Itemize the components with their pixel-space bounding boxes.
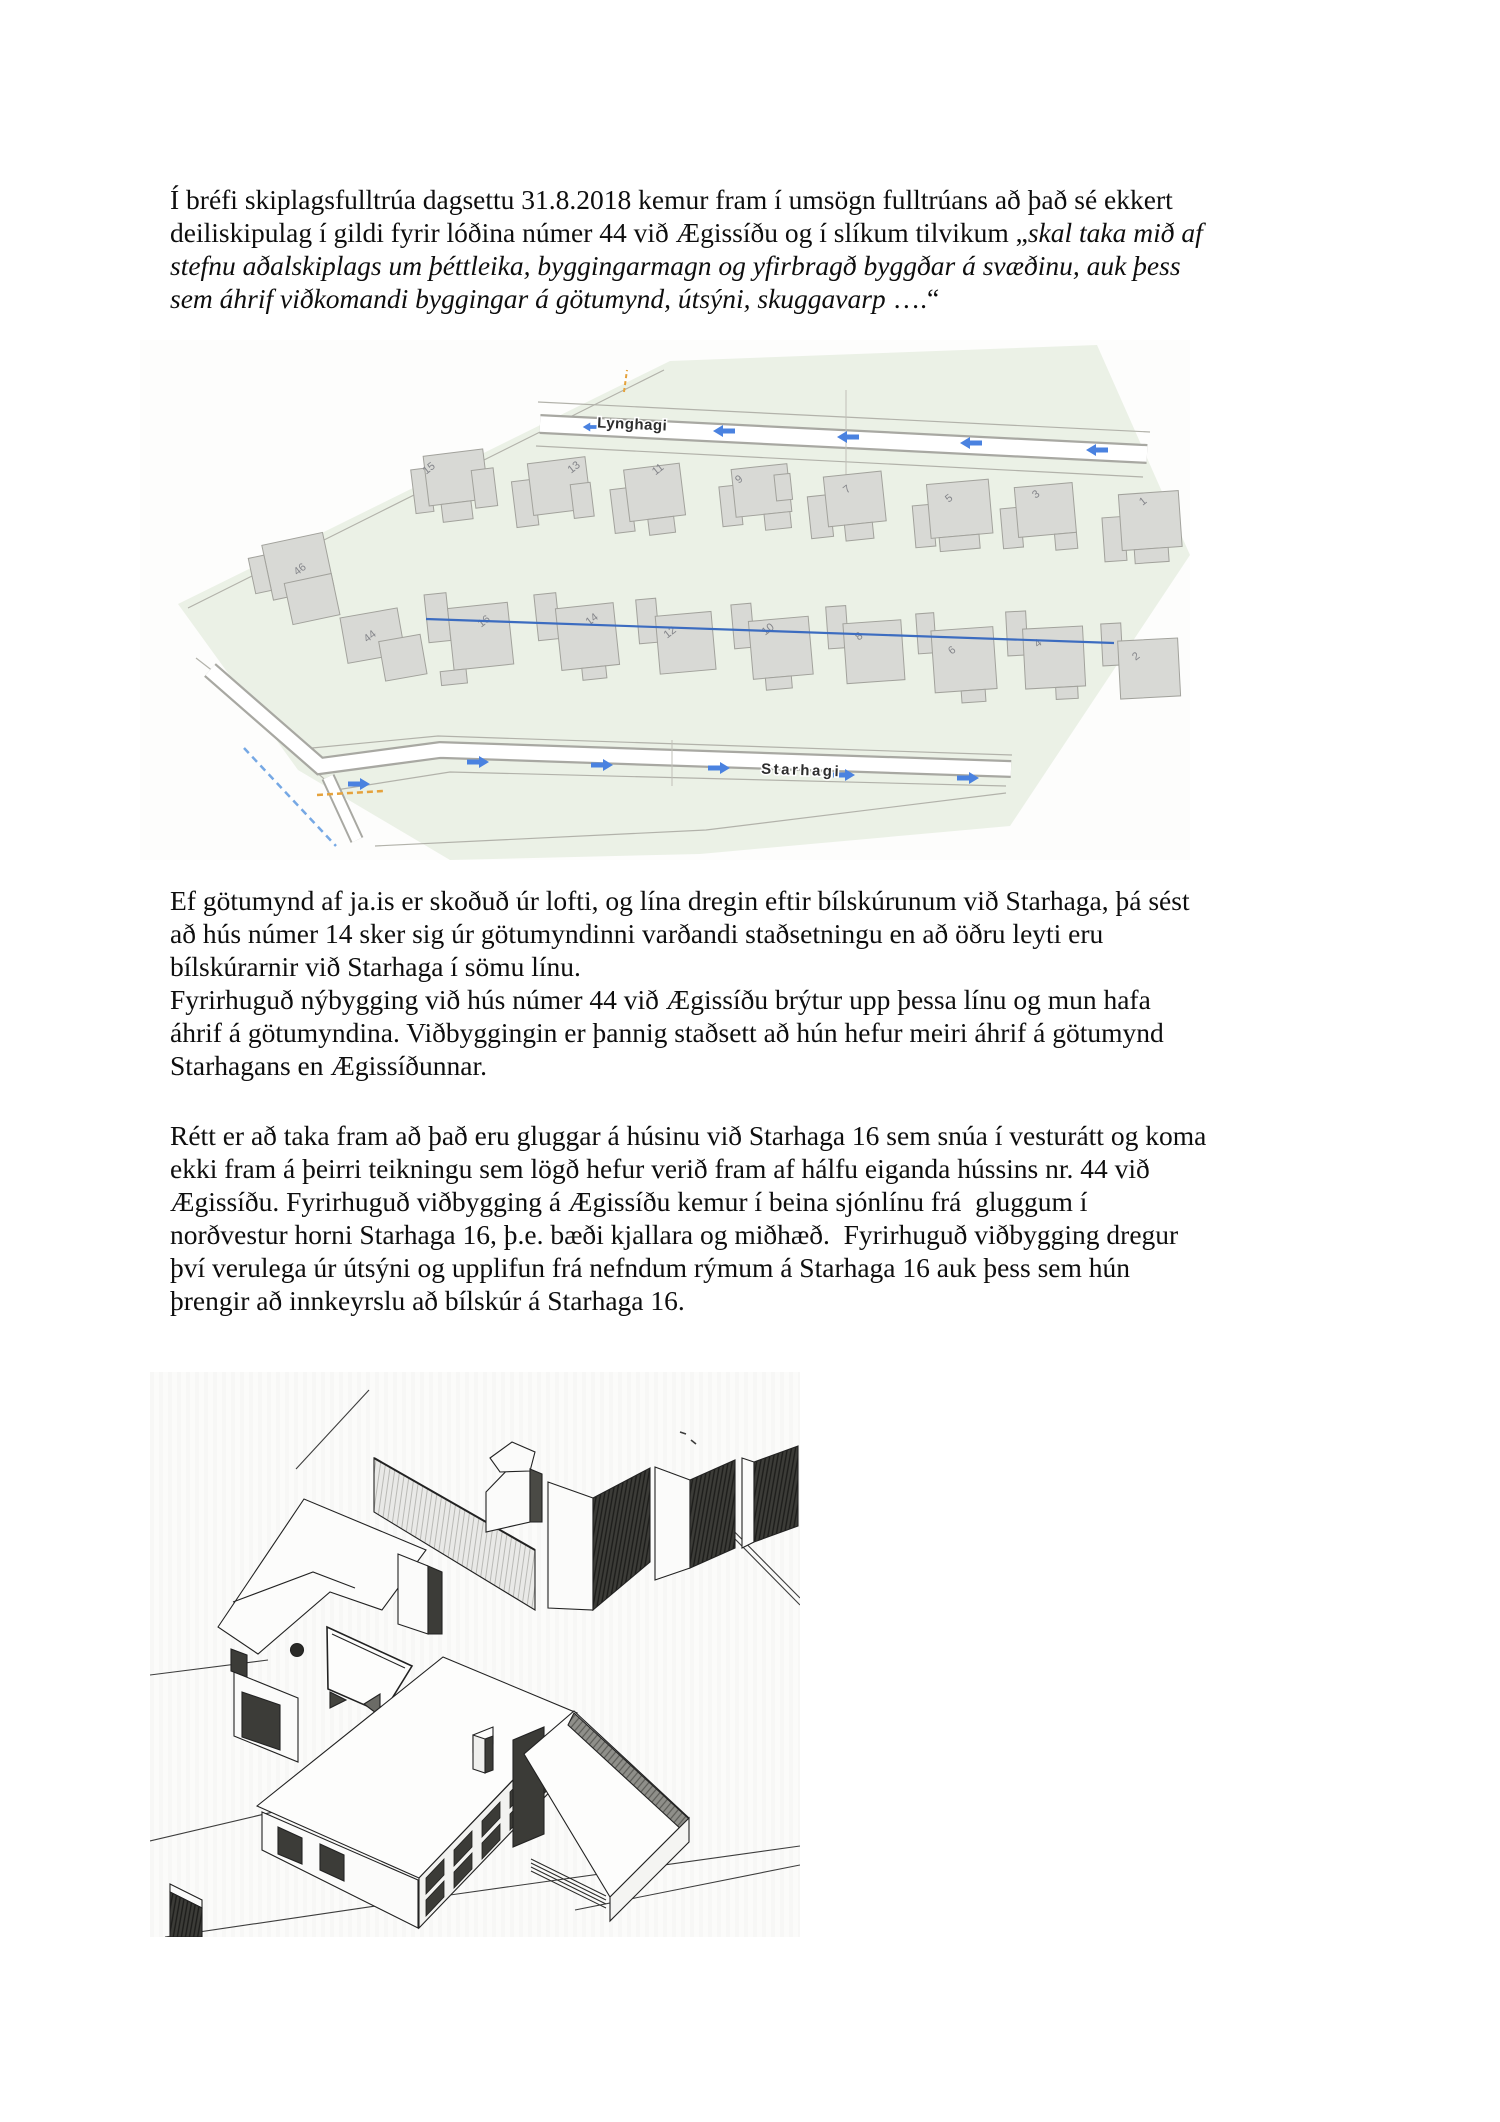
paragraph-line: ekki fram á þeirri teikningu sem lögð he… bbox=[170, 1152, 1360, 1185]
paragraph-line: Fyrirhuguð nýbygging við hús númer 44 vi… bbox=[170, 983, 1360, 1016]
paragraph-line: Í bréfi skiplagsfulltrúa dagsettu 31.8.2… bbox=[170, 183, 1360, 216]
paragraph-line: deiliskipulag í gildi fyrir lóðina númer… bbox=[170, 216, 1360, 249]
street-label-lynghagi: Lynghagi bbox=[597, 414, 668, 434]
document-page: Í bréfi skiplagsfulltrúa dagsettu 31.8.2… bbox=[0, 0, 1500, 2122]
ramp-court bbox=[524, 1711, 689, 1921]
paragraph-block: Í bréfi skiplagsfulltrúa dagsettu 31.8.2… bbox=[170, 183, 1360, 315]
aerial-map-figure: 151311975314644161412108642 Lynghagi Sta… bbox=[140, 340, 1190, 860]
paragraph-line: Ægissíðu. Fyrirhuguð viðbygging á Ægissí… bbox=[170, 1185, 1360, 1218]
paragraph-line: sem áhrif viðkomandi byggingar á götumyn… bbox=[170, 282, 1360, 315]
paragraph-line: Starhagans en Ægissíðunnar. bbox=[170, 1049, 1360, 1082]
paragraph-line: norðvestur horni Starhaga 16, þ.e. bæði … bbox=[170, 1218, 1360, 1251]
axonometric-rendering bbox=[150, 1372, 800, 1937]
roof-chimney bbox=[473, 1727, 493, 1773]
paragraph-line: bílskúrarnir við Starhaga í sömu línu. bbox=[170, 950, 1360, 983]
roof-vent bbox=[291, 1644, 304, 1657]
paragraph-line: Rétt er að taka fram að það eru gluggar … bbox=[170, 1119, 1360, 1152]
street-label-starhagi: Starhagi bbox=[761, 761, 842, 781]
paragraph-line: stefnu aðalskiplags um þéttleika, byggin… bbox=[170, 249, 1360, 282]
street-map: 151311975314644161412108642 Lynghagi Sta… bbox=[140, 340, 1190, 860]
paragraph-block: Rétt er að taka fram að það eru gluggar … bbox=[170, 1119, 1360, 1317]
paragraph-line: áhrif á götumyndina. Viðbyggingin er þan… bbox=[170, 1016, 1360, 1049]
paragraph-line: þrengir að innkeyrslu að bílskúr á Starh… bbox=[170, 1284, 1360, 1317]
paragraph-line: því verulega úr útsýni og upplifun frá n… bbox=[170, 1251, 1360, 1284]
paragraph-line: Ef götumynd af ja.is er skoðuð úr lofti,… bbox=[170, 884, 1360, 917]
axonometric-rendering-figure bbox=[150, 1372, 800, 1937]
paragraph-line: að hús númer 14 sker sig úr götumyndinni… bbox=[170, 917, 1360, 950]
paragraph-block: Ef götumynd af ja.is er skoðuð úr lofti,… bbox=[170, 884, 1360, 1082]
main-house bbox=[257, 1657, 577, 1928]
bottom-left-building-fragment bbox=[170, 1884, 202, 1937]
